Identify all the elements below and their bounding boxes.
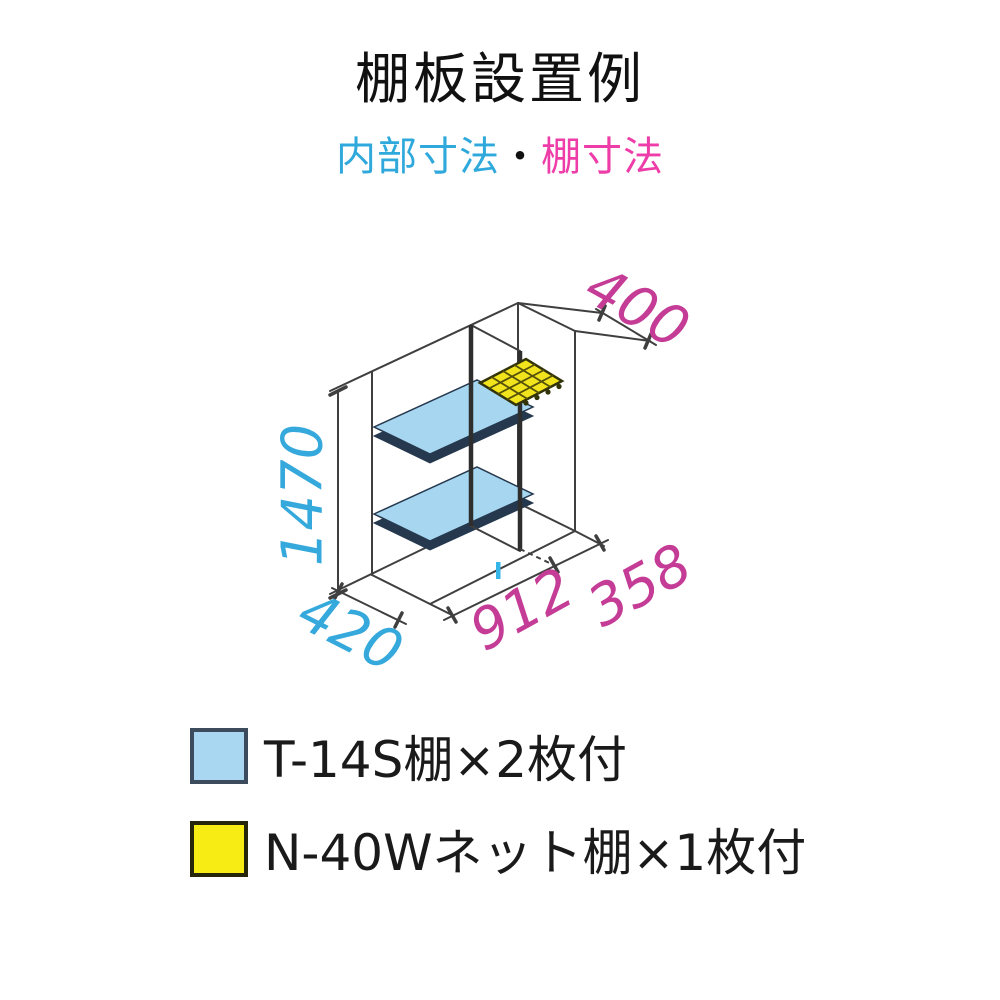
width-left-dimension-label: 912 xyxy=(459,556,584,665)
divider-bottom-edge xyxy=(471,526,520,551)
legend-label-net-shelf: N-40Wネット棚×1枚付 xyxy=(264,813,806,885)
divider-position-marker xyxy=(496,562,501,579)
legend: T-14S棚×2枚付 N-40Wネット棚×1枚付 xyxy=(190,720,806,906)
floor-left-depth-edge xyxy=(372,575,452,615)
net-depth-dimension-label: 400 xyxy=(574,254,699,363)
divider-top-edge xyxy=(471,325,520,351)
net-shelf-grid xyxy=(489,365,553,400)
net-shelf-color-swatch xyxy=(190,821,248,877)
width-right-dimension-label: 358 xyxy=(577,532,702,641)
legend-item-net-shelf: N-40Wネット棚×1枚付 xyxy=(190,813,806,885)
shelf-color-swatch xyxy=(190,728,248,784)
floor-right-depth-edge xyxy=(518,503,575,531)
legend-label-shelf: T-14S棚×2枚付 xyxy=(264,720,627,792)
depth-dimension-label: 420 xyxy=(288,579,413,685)
shelf-lower xyxy=(374,467,533,550)
legend-item-shelf: T-14S棚×2枚付 xyxy=(190,720,806,792)
height-dimension-label: 1470 xyxy=(271,424,336,567)
